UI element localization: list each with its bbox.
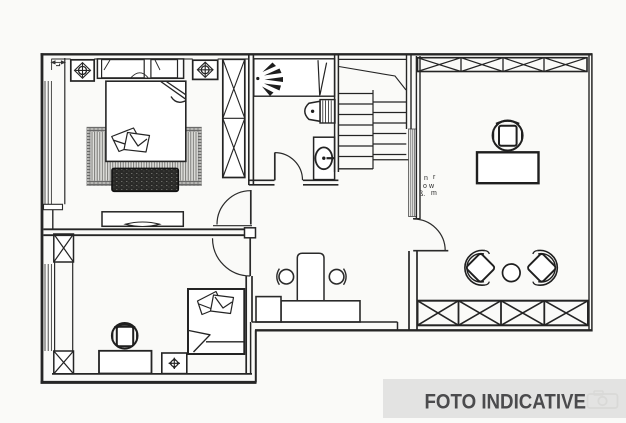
svg-text:FOTO INDICATIVE: FOTO INDICATIVE xyxy=(425,390,587,414)
svg-text:o: o xyxy=(423,183,427,190)
svg-text:n: n xyxy=(424,175,428,182)
svg-text:m: m xyxy=(431,190,437,197)
svg-text:w: w xyxy=(428,183,435,190)
